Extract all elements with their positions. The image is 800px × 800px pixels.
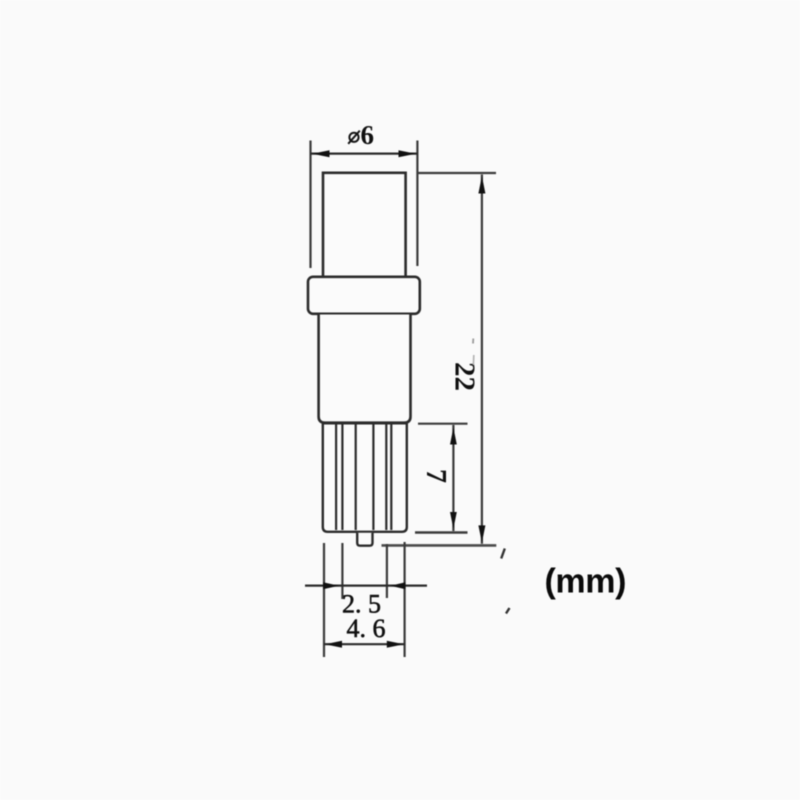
svg-text:4. 6: 4. 6 xyxy=(347,614,386,643)
svg-text:22: 22 xyxy=(449,362,481,391)
svg-text:7: 7 xyxy=(420,469,451,483)
svg-text:(mm): (mm) xyxy=(545,563,627,601)
svg-text:6: 6 xyxy=(361,120,375,150)
